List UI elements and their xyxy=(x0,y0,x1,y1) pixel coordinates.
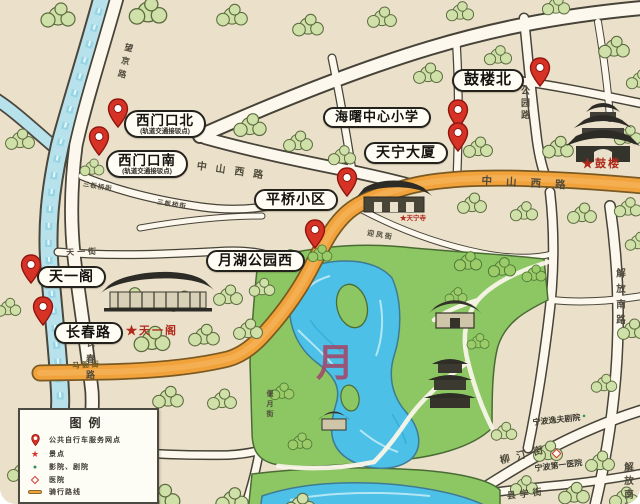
legend-item-label: 影院、剧院 xyxy=(49,462,89,472)
route-line-icon xyxy=(28,490,42,494)
station-label-text: 鼓楼北 xyxy=(464,72,512,89)
station-label-text: 海曙中心小学 xyxy=(335,110,419,125)
street-label-tianyi-st: 天一街 xyxy=(66,246,99,258)
legend-item-label: 景点 xyxy=(49,449,65,459)
legend: 图例 公共自行车服务网点 ★ 景点 ● 影院、剧院 医院 骑行路线 xyxy=(18,408,159,504)
station-label-yuehu-park-west[interactable]: 月湖公园西 xyxy=(206,250,305,272)
station-label-changchun-road[interactable]: 长春路 xyxy=(54,322,123,344)
street-label-gongyuan-rd: 公园路 xyxy=(519,86,532,122)
legend-item-label: 骑行路线 xyxy=(49,487,81,497)
station-label-tianyige[interactable]: 天一阁 xyxy=(37,266,106,288)
station-pin-ximenkou-south[interactable] xyxy=(88,126,110,156)
poi-label-tianyige: ★天一阁 xyxy=(126,322,178,338)
theatre-dot-icon: ● xyxy=(28,464,42,471)
moon-lake-character: 月 xyxy=(316,332,354,387)
station-label-text: 月湖公园西 xyxy=(218,253,293,269)
station-label-text: 天一阁 xyxy=(49,269,94,285)
scenic-star-icon: ★ xyxy=(28,449,42,460)
station-pin-ximenkou-north[interactable] xyxy=(107,98,129,128)
station-pin-gulou-north[interactable] xyxy=(529,57,551,87)
station-pin-tianning-building[interactable] xyxy=(447,122,469,152)
hand-drawn-bike-route-map: 西门口北 (轨道交通接驳点) 西门口南 (轨道交通接驳点) 鼓楼北 海曙中心小学… xyxy=(0,0,640,504)
station-label-tianning-building[interactable]: 天宁大厦 xyxy=(364,142,448,164)
poi-label-tianning-temple: ★天宁寺 xyxy=(400,212,426,222)
station-pin-yuehu-park-west[interactable] xyxy=(304,219,326,249)
theatre-dot-icon: ● xyxy=(582,413,586,419)
legend-item-theatre: ● 影院、剧院 xyxy=(28,462,149,472)
station-label-subtext: (轨道交通接驳点) xyxy=(140,128,190,135)
station-pin-pingqiao-estate[interactable] xyxy=(336,167,358,197)
station-label-pingqiao-estate[interactable]: 平桥小区 xyxy=(254,189,338,211)
street-label-jiefang-south-rd: 解放南路 xyxy=(612,268,626,330)
street-label-yanyue-st: 偃月街 xyxy=(264,390,274,420)
station-label-subtext: (轨道交通接驳点) xyxy=(122,168,172,175)
station-pin-tianyige[interactable] xyxy=(20,254,42,284)
street-label-changchun-rd: 长春路 xyxy=(84,338,97,386)
station-label-ximenkou-south[interactable]: 西门口南 (轨道交通接驳点) xyxy=(106,150,188,178)
station-label-text: 长春路 xyxy=(66,325,111,341)
station-label-text: 天宁大厦 xyxy=(376,145,436,161)
bike-station-pin-icon xyxy=(28,434,42,446)
hospital-icon xyxy=(28,477,42,483)
legend-title: 图例 xyxy=(28,414,149,431)
street-label-jiefang-south-rd-2: 解放南路 xyxy=(620,462,634,504)
station-label-ximenkou-north[interactable]: 西门口北 (轨道交通接驳点) xyxy=(124,110,206,138)
legend-item-label: 公共自行车服务网点 xyxy=(49,435,121,445)
legend-item-scenic-spot: ★ 景点 xyxy=(28,449,149,460)
legend-item-hospital: 医院 xyxy=(28,475,149,485)
station-label-haishu-primary-school[interactable]: 海曙中心小学 xyxy=(323,107,431,128)
station-label-gulou-north[interactable]: 鼓楼北 xyxy=(452,69,524,92)
station-label-text: 西门口北 xyxy=(136,113,194,128)
poi-label-gulou: ★鼓楼 xyxy=(582,155,621,171)
station-label-text: 西门口南 xyxy=(118,153,176,168)
legend-item-label: 医院 xyxy=(49,475,65,485)
legend-item-bike-station: 公共自行车服务网点 xyxy=(28,434,149,446)
station-label-text: 平桥小区 xyxy=(266,192,326,208)
legend-item-cycling-route: 骑行路线 xyxy=(28,487,149,497)
station-pin-changchun-road[interactable] xyxy=(32,296,54,326)
